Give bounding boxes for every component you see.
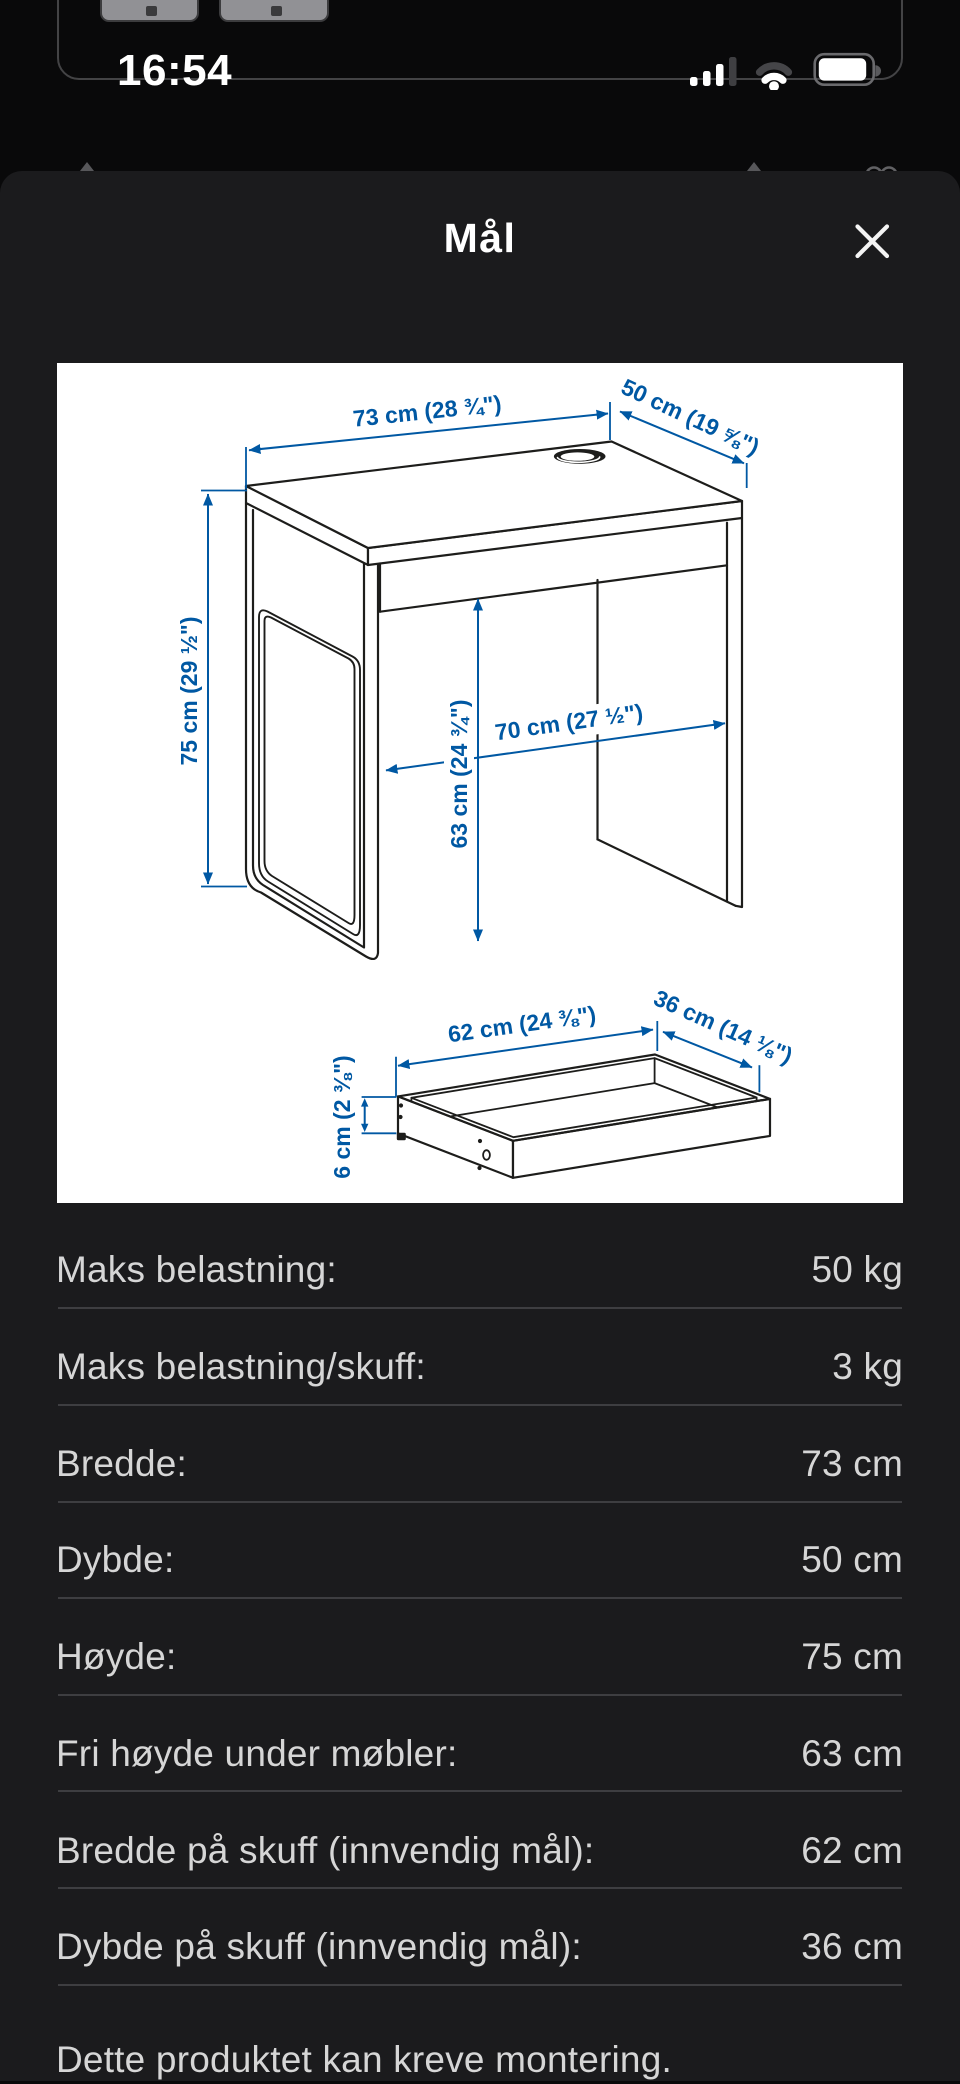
svg-text:50 cm (19 ⅝"): 50 cm (19 ⅝") <box>617 373 763 460</box>
svg-text:73 cm (28 ¾"): 73 cm (28 ¾") <box>352 390 503 431</box>
svg-text:75 cm (29 ½"): 75 cm (29 ½") <box>176 617 202 766</box>
svg-text:63 cm (24 ¾"): 63 cm (24 ¾") <box>446 700 472 849</box>
svg-text:6 cm (2 ⅜"): 6 cm (2 ⅜") <box>329 1055 355 1178</box>
